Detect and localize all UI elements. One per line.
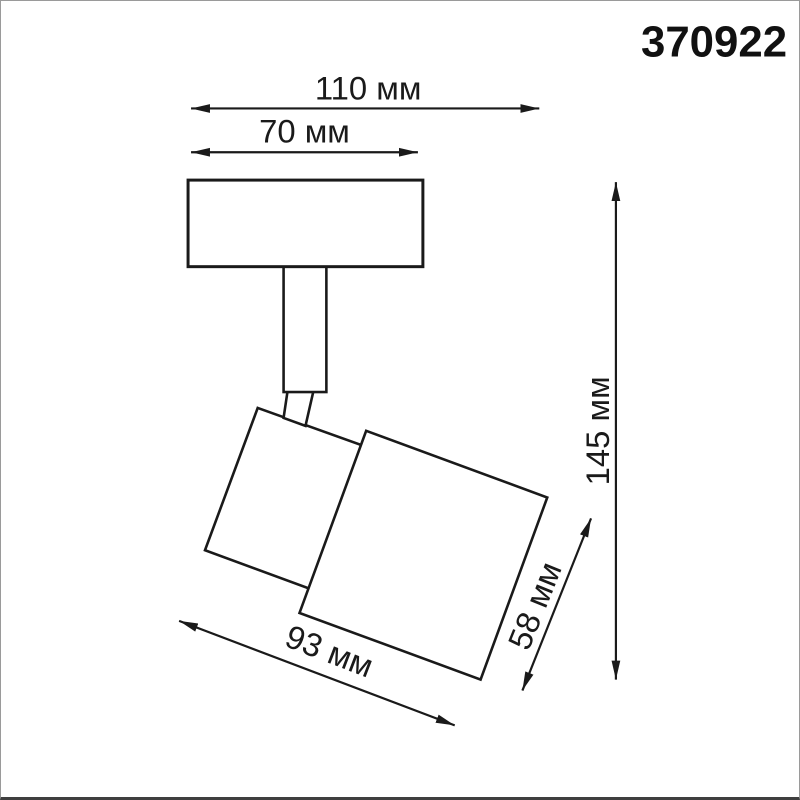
- fixture-outline: [188, 180, 547, 679]
- dim-label-overall-height: 145 мм: [579, 376, 616, 485]
- swivel-neck: [284, 391, 314, 426]
- mount-base-plate: [188, 180, 423, 267]
- product-code: 370922: [641, 18, 787, 67]
- dimension-drawing: 110 мм 70 мм 145 мм 58 мм 93 мм 370922: [1, 1, 799, 797]
- dim-label-overall-width: 110 мм: [315, 70, 422, 107]
- dim-label-base-width: 70 мм: [259, 112, 350, 149]
- technical-drawing-canvas: 110 мм 70 мм 145 мм 58 мм 93 мм 370922: [0, 0, 800, 800]
- stem: [284, 267, 327, 392]
